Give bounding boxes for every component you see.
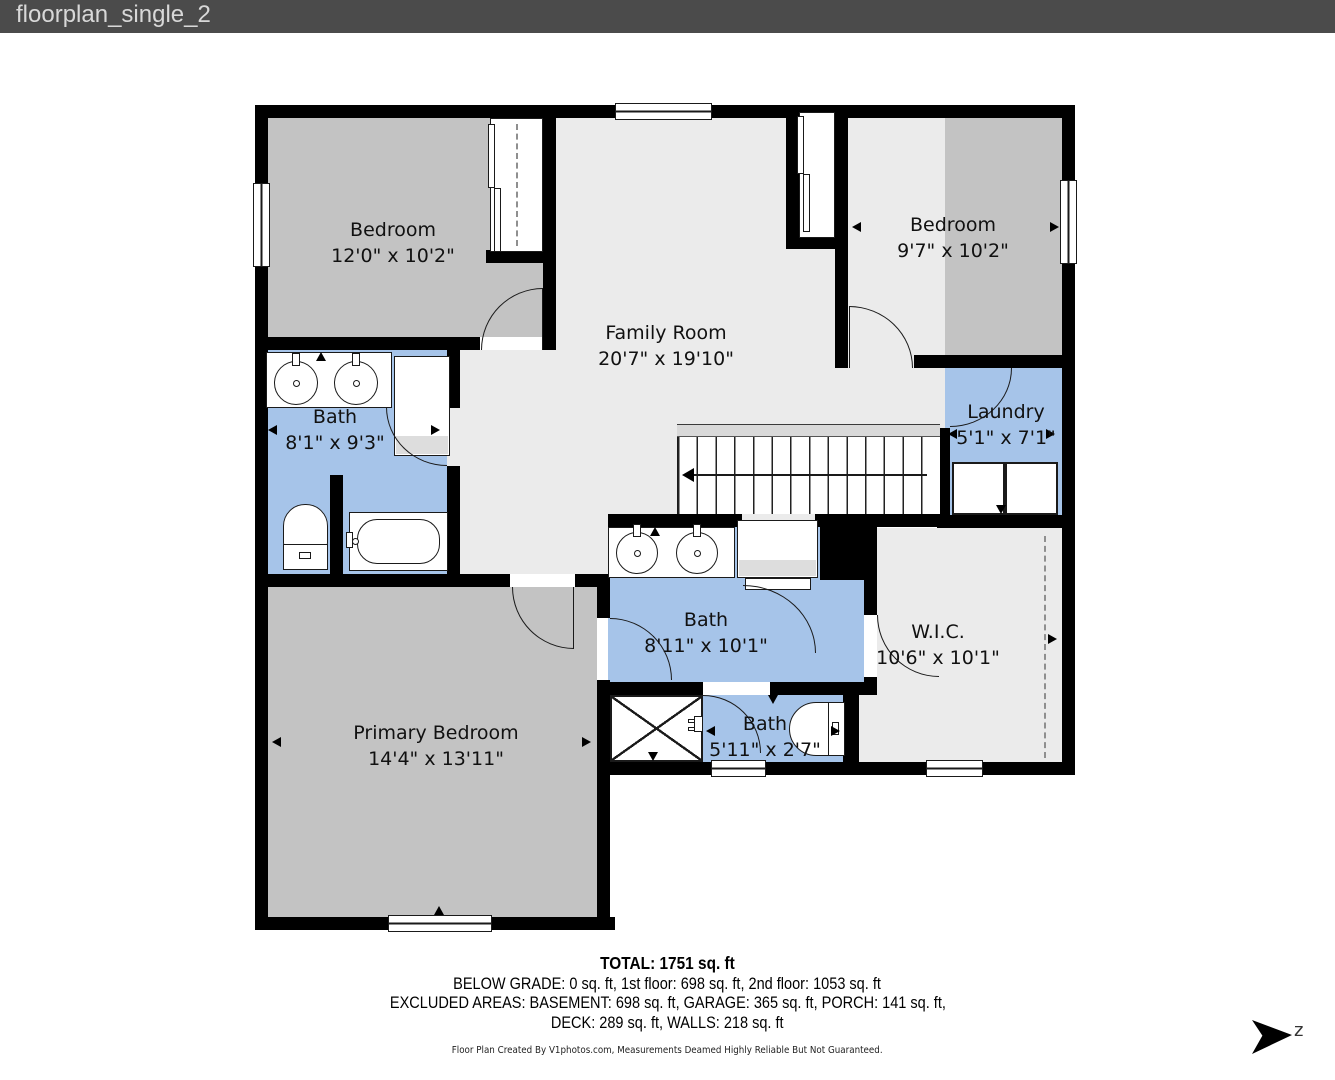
chase-void xyxy=(820,527,877,580)
sliding-door xyxy=(803,174,810,232)
room-label-bedroom-right: Bedroom 9'7" x 10'2" xyxy=(897,212,1009,264)
dimension-marker xyxy=(768,695,778,704)
room-dims: 5'1" x 7'1" xyxy=(956,425,1056,451)
toilet-button xyxy=(299,552,311,559)
dimension-marker xyxy=(1050,222,1059,232)
tub-faucet-knob xyxy=(352,538,359,545)
dimension-marker xyxy=(431,425,440,435)
wall xyxy=(255,574,510,587)
room-label-bath-center: Bath 8'11" x 10'1" xyxy=(644,607,768,659)
shower-valve xyxy=(694,716,703,732)
wall xyxy=(864,580,877,615)
dimension-marker xyxy=(434,906,444,915)
wall xyxy=(597,574,610,618)
floorplan-viewer: floorplan_single_2 xyxy=(0,0,1335,1080)
window xyxy=(1060,180,1077,264)
dimension-marker xyxy=(368,107,378,116)
room-name: Bedroom xyxy=(331,217,455,243)
window xyxy=(926,760,983,777)
wall xyxy=(815,514,937,527)
room-dims: 5'11" x 2'7" xyxy=(709,737,821,763)
room-name: Family Room xyxy=(598,320,734,346)
wall xyxy=(914,355,1075,368)
wall xyxy=(770,682,877,695)
wall xyxy=(330,475,343,580)
shower-threshold xyxy=(739,560,816,576)
room-dims: 9'7" x 10'2" xyxy=(897,238,1009,264)
dimension-marker xyxy=(648,752,658,761)
room-dims: 14'4" x 13'11" xyxy=(353,746,518,772)
wall xyxy=(255,337,480,350)
dimension-marker xyxy=(272,737,281,747)
dimension-marker xyxy=(948,107,958,116)
sink-icon xyxy=(334,361,378,405)
shower-valve-handle xyxy=(688,719,695,723)
room-name: Bath xyxy=(709,711,821,737)
wall xyxy=(843,682,859,762)
wall xyxy=(608,514,742,527)
room-label-bedroom-left: Bedroom 12'0" x 10'2" xyxy=(331,217,455,269)
closet-rod xyxy=(516,124,518,246)
title-bar: floorplan_single_2 xyxy=(0,0,1335,33)
dimension-marker xyxy=(582,737,591,747)
dimension-marker xyxy=(268,425,277,435)
room-label-bath-left: Bath 8'1" x 9'3" xyxy=(285,404,385,456)
room-dims: 20'7" x 19'10" xyxy=(598,346,734,372)
sliding-door xyxy=(488,124,495,188)
window-title: floorplan_single_2 xyxy=(16,1,211,29)
room-label-laundry: Laundry 5'1" x 7'1" xyxy=(956,399,1056,451)
dimension-marker xyxy=(650,527,660,536)
wall xyxy=(610,682,703,695)
window xyxy=(615,103,712,120)
wall xyxy=(543,105,556,350)
room-name: Bedroom xyxy=(897,212,1009,238)
stairs-direction-line xyxy=(693,474,927,476)
summary-below-grade: BELOW GRADE: 0 sq. ft, 1st floor: 698 sq… xyxy=(454,975,882,995)
wall xyxy=(575,574,597,587)
room-dims: 8'1" x 9'3" xyxy=(285,430,385,456)
dimension-marker xyxy=(852,222,861,232)
sink-icon xyxy=(676,532,718,574)
dimension-marker xyxy=(1048,634,1057,644)
wall xyxy=(597,680,610,930)
wall xyxy=(447,466,460,574)
hallway-floor xyxy=(447,350,556,574)
bathtub-basin xyxy=(357,519,440,564)
room-label-primary-bedroom: Primary Bedroom 14'4" x 13'11" xyxy=(353,720,518,772)
sliding-door xyxy=(797,116,804,174)
room-label-family-room: Family Room 20'7" x 19'10" xyxy=(598,320,734,372)
sink-icon xyxy=(274,361,318,405)
compass-letter: z xyxy=(1294,1020,1303,1041)
room-dims: 12'0" x 10'2" xyxy=(331,243,455,269)
dryer-icon xyxy=(1005,462,1058,515)
dimension-marker xyxy=(996,505,1006,514)
sink-icon xyxy=(616,532,658,574)
area-summary: TOTAL: 1751 sq. ft BELOW GRADE: 0 sq. ft… xyxy=(0,954,1335,1033)
shower-valve-handle xyxy=(688,727,695,731)
closet-rod xyxy=(1044,536,1046,758)
summary-excluded-areas: EXCLUDED AREAS: BASEMENT: 698 sq. ft, GA… xyxy=(389,994,945,1014)
stair-railing xyxy=(677,424,940,437)
dimension-marker xyxy=(831,726,840,736)
window xyxy=(253,183,270,267)
wall xyxy=(864,677,877,695)
stairs-direction-arrow xyxy=(682,468,694,482)
sliding-door xyxy=(494,188,501,252)
room-name: Bath xyxy=(644,607,768,633)
room-name: Laundry xyxy=(956,399,1056,425)
hallway-floor xyxy=(552,527,610,574)
toilet-icon xyxy=(283,504,328,548)
window xyxy=(388,915,492,932)
wall xyxy=(937,515,1075,528)
summary-deck-walls: DECK: 289 sq. ft, WALLS: 218 sq. ft xyxy=(551,1014,784,1034)
disclaimer: Floor Plan Created By V1photos.com, Meas… xyxy=(0,1045,1335,1056)
wall xyxy=(602,762,1075,775)
room-name: W.I.C. xyxy=(876,619,1000,645)
dimension-marker xyxy=(316,352,326,361)
room-label-bath-small: Bath 5'11" x 2'7" xyxy=(709,711,821,763)
summary-total: TOTAL: 1751 sq. ft xyxy=(600,954,735,974)
room-name: Bath xyxy=(285,404,385,430)
room-dims: 10'6" x 10'1" xyxy=(876,645,1000,671)
room-name: Primary Bedroom xyxy=(353,720,518,746)
room-dims: 8'11" x 10'1" xyxy=(644,633,768,659)
room-label-wic: W.I.C. 10'6" x 10'1" xyxy=(876,619,1000,671)
disclaimer-text: Floor Plan Created By V1photos.com, Meas… xyxy=(452,1045,883,1056)
